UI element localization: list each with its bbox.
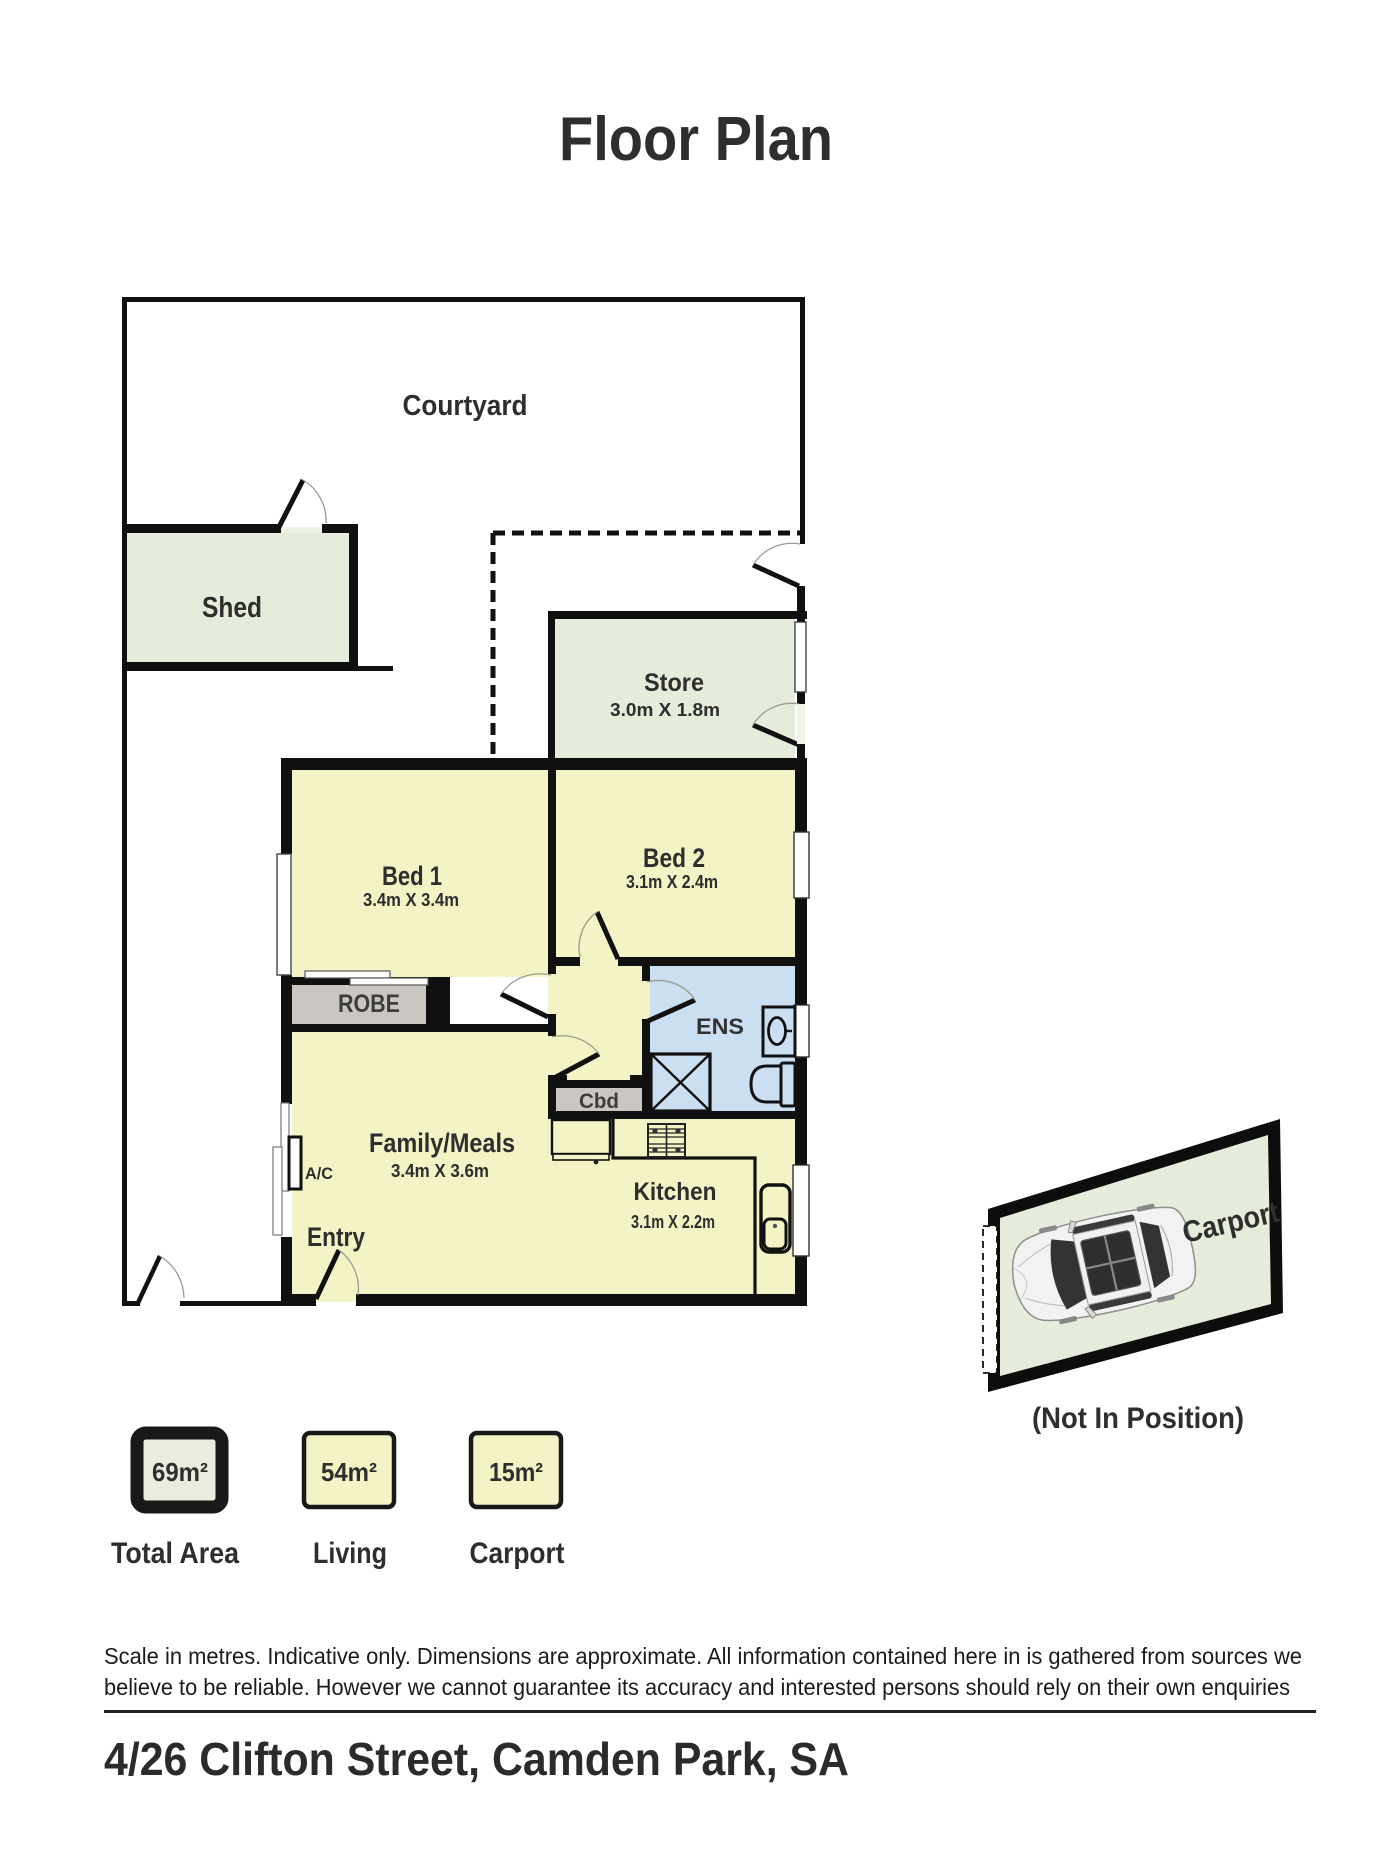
svg-text:3.1m X 2.2m: 3.1m X 2.2m: [631, 1211, 715, 1232]
svg-text:A/C: A/C: [305, 1165, 333, 1183]
svg-text:15m²: 15m²: [489, 1457, 543, 1487]
svg-text:3.0m X 1.8m: 3.0m X 1.8m: [610, 699, 720, 720]
svg-text:4/26 Clifton Street, Camden Pa: 4/26 Clifton Street, Camden Park, SA: [104, 1733, 849, 1785]
svg-text:Shed: Shed: [202, 592, 262, 624]
svg-text:believe to be reliable. Howeve: believe to be reliable. However we canno…: [104, 1674, 1290, 1700]
svg-text:3.4m X 3.4m: 3.4m X 3.4m: [363, 889, 459, 910]
svg-text:3.1m X 2.4m: 3.1m X 2.4m: [626, 871, 718, 892]
svg-text:Entry: Entry: [307, 1222, 365, 1252]
svg-text:Store: Store: [644, 669, 704, 697]
svg-text:Courtyard: Courtyard: [403, 390, 528, 422]
svg-text:Bed 2: Bed 2: [643, 843, 705, 873]
svg-text:Floor Plan: Floor Plan: [559, 105, 833, 174]
svg-text:Bed 1: Bed 1: [382, 861, 442, 891]
svg-text:Living: Living: [313, 1537, 387, 1570]
svg-text:Carport: Carport: [470, 1537, 565, 1570]
svg-text:(Not In Position): (Not In Position): [1032, 1402, 1244, 1435]
svg-text:Total Area: Total Area: [111, 1537, 239, 1570]
svg-text:69m²: 69m²: [152, 1457, 208, 1487]
svg-text:54m²: 54m²: [321, 1457, 377, 1487]
svg-text:3.4m X 3.6m: 3.4m X 3.6m: [391, 1160, 489, 1181]
svg-text:ROBE: ROBE: [338, 990, 400, 1018]
svg-text:Family/Meals: Family/Meals: [369, 1128, 515, 1158]
svg-text:Scale in metres. Indicative on: Scale in metres. Indicative only. Dimens…: [104, 1643, 1302, 1669]
svg-text:ENS: ENS: [696, 1014, 744, 1039]
svg-text:Cbd: Cbd: [579, 1090, 619, 1113]
svg-text:Kitchen: Kitchen: [634, 1178, 717, 1206]
